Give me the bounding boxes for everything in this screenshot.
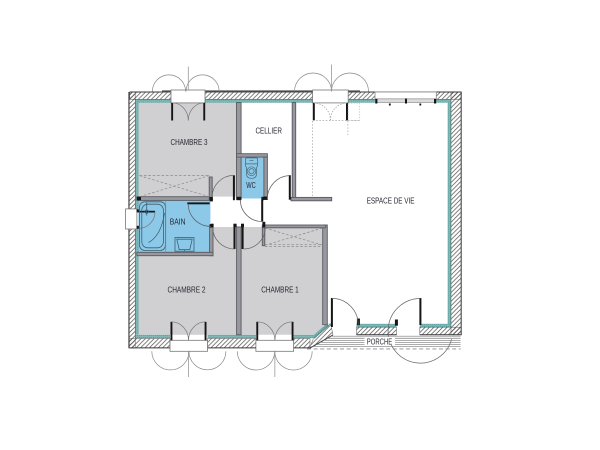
svg-text:BAIN: BAIN (170, 216, 186, 226)
svg-text:CELLIER: CELLIER (255, 126, 282, 136)
svg-text:CHAMBRE 1: CHAMBRE 1 (261, 285, 299, 295)
svg-text:ESPACE DE VIE: ESPACE DE VIE (367, 195, 415, 205)
svg-text:CHAMBRE 2: CHAMBRE 2 (168, 285, 206, 295)
svg-text:CHAMBRE 3: CHAMBRE 3 (171, 137, 208, 147)
svg-text:PORCHE: PORCHE (367, 336, 393, 346)
svg-text:WC: WC (246, 180, 256, 190)
